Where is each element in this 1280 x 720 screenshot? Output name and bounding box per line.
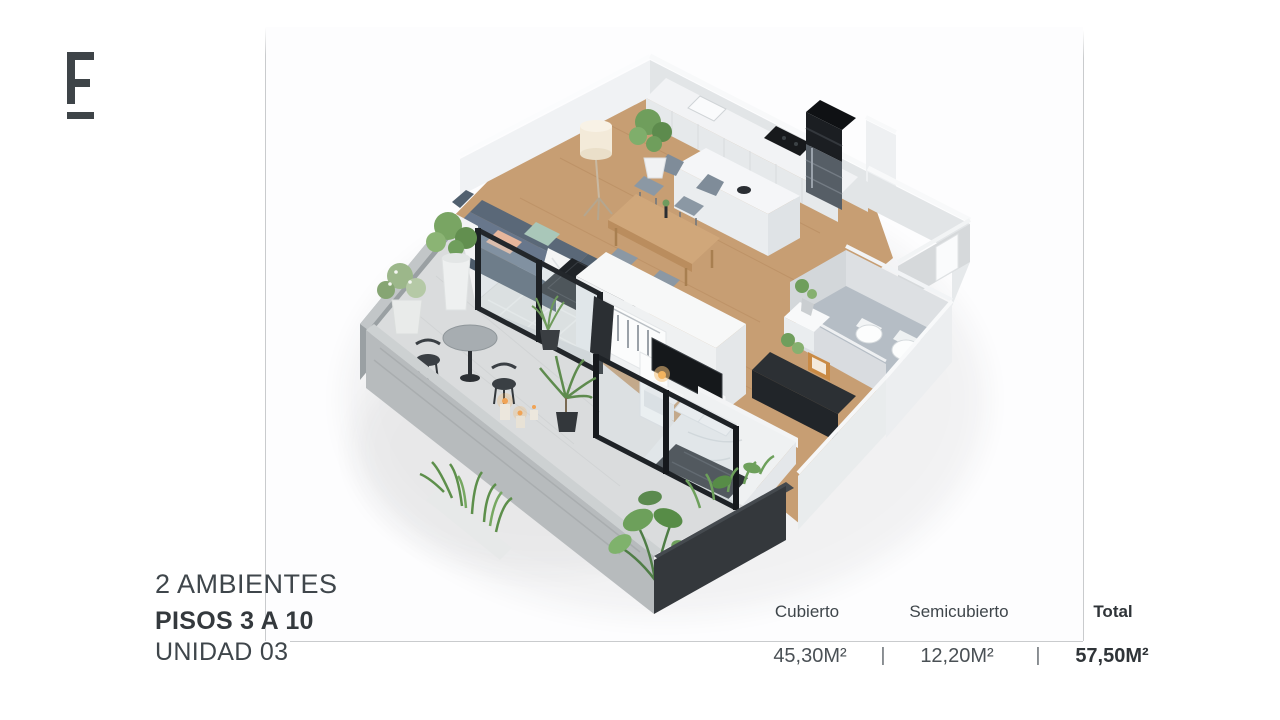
presentation-slide: 2 AMBIENTES PISOS 3 A 10 UNIDAD 03 Cubie… bbox=[0, 0, 1280, 720]
window-jog-wall bbox=[590, 296, 614, 362]
floorplan-3d-render bbox=[0, 0, 1280, 720]
